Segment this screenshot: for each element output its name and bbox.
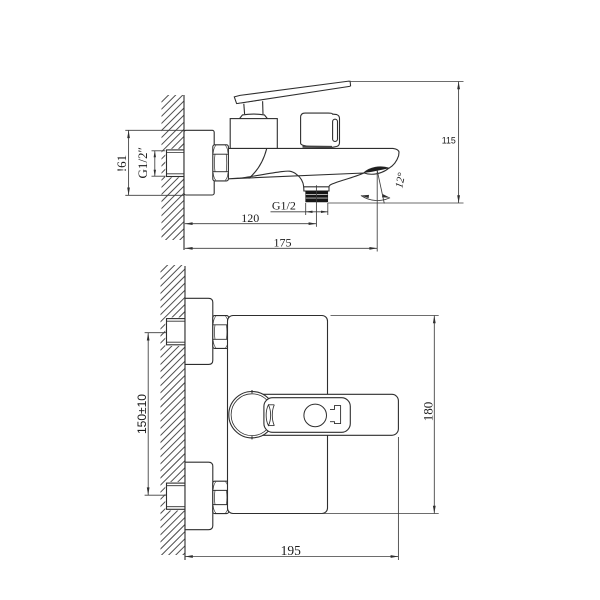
svg-text:115: 115	[442, 135, 456, 145]
svg-text:150±10: 150±10	[135, 394, 149, 434]
svg-text:G1/2: G1/2	[272, 198, 296, 212]
svg-text:195: 195	[281, 543, 302, 558]
svg-text:G1/2″: G1/2″	[135, 147, 150, 178]
svg-text:175: 175	[274, 235, 292, 249]
svg-text:180: 180	[420, 402, 435, 422]
svg-text:120: 120	[241, 211, 259, 225]
svg-text:!61: !61	[114, 155, 129, 172]
